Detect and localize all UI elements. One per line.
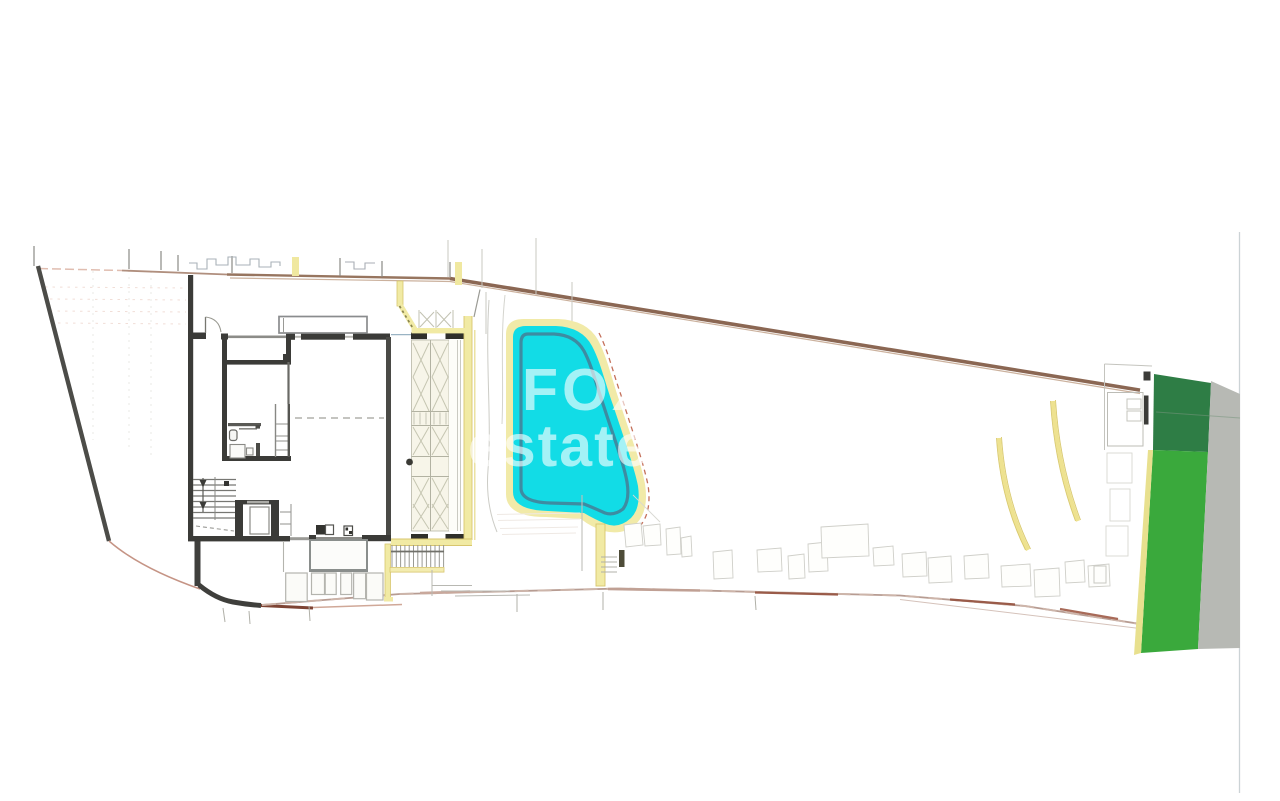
svg-text:estates: estates bbox=[468, 413, 685, 479]
